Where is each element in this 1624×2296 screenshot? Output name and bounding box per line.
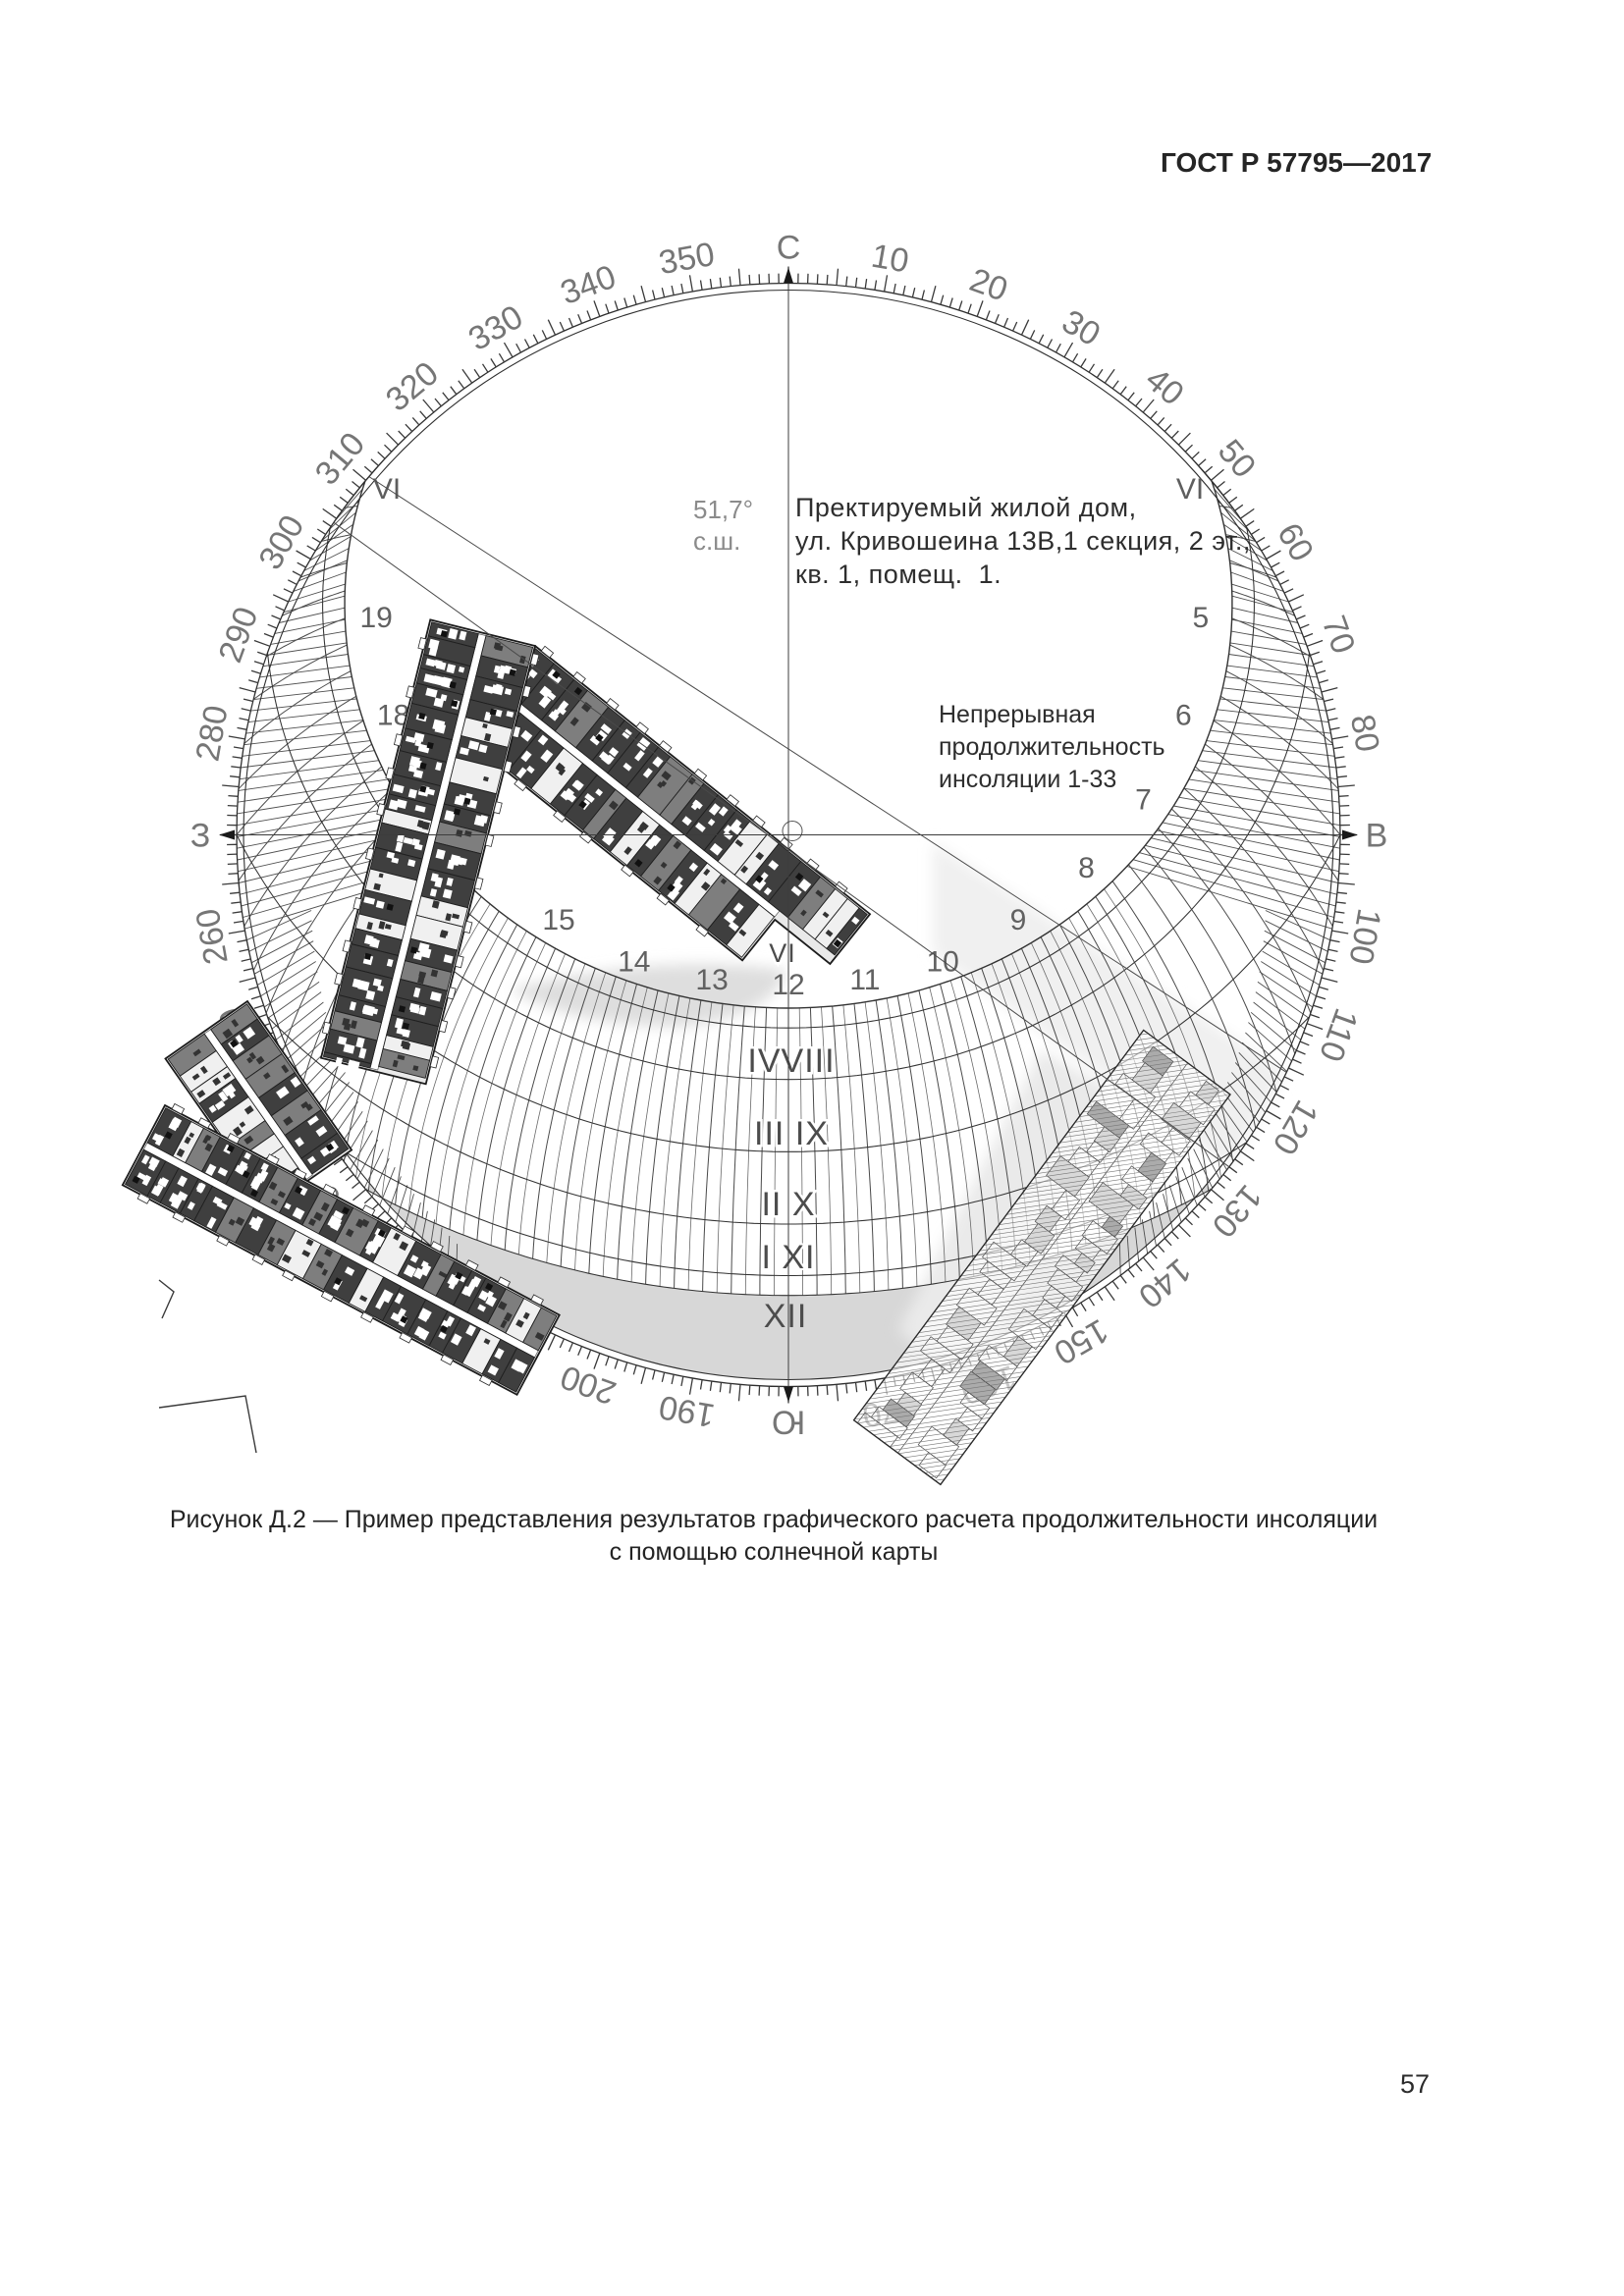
svg-text:В: В xyxy=(1366,818,1388,855)
svg-text:Ю: Ю xyxy=(772,1404,805,1441)
svg-text:VI: VI xyxy=(373,473,401,506)
svg-text:8: 8 xyxy=(1078,852,1095,884)
svg-text:13: 13 xyxy=(695,964,728,996)
svg-text:80: 80 xyxy=(1343,712,1386,755)
svg-text:6: 6 xyxy=(1175,700,1192,732)
svg-text:9: 9 xyxy=(1010,904,1027,936)
svg-text:IVVIII: IVVIII xyxy=(747,1042,835,1080)
svg-text:С: С xyxy=(777,230,801,267)
svg-text:19: 19 xyxy=(360,602,393,634)
svg-text:5: 5 xyxy=(1192,602,1209,634)
svg-text:14: 14 xyxy=(618,946,650,979)
svg-text:11: 11 xyxy=(849,964,880,996)
svg-text:XII: XII xyxy=(764,1298,808,1335)
svg-text:15: 15 xyxy=(542,904,574,936)
svg-text:З: З xyxy=(190,818,211,855)
svg-text:10: 10 xyxy=(927,946,959,979)
svg-text:10: 10 xyxy=(869,238,912,281)
svg-text:VI: VI xyxy=(769,938,796,968)
svg-text:III IX: III IX xyxy=(754,1115,829,1152)
